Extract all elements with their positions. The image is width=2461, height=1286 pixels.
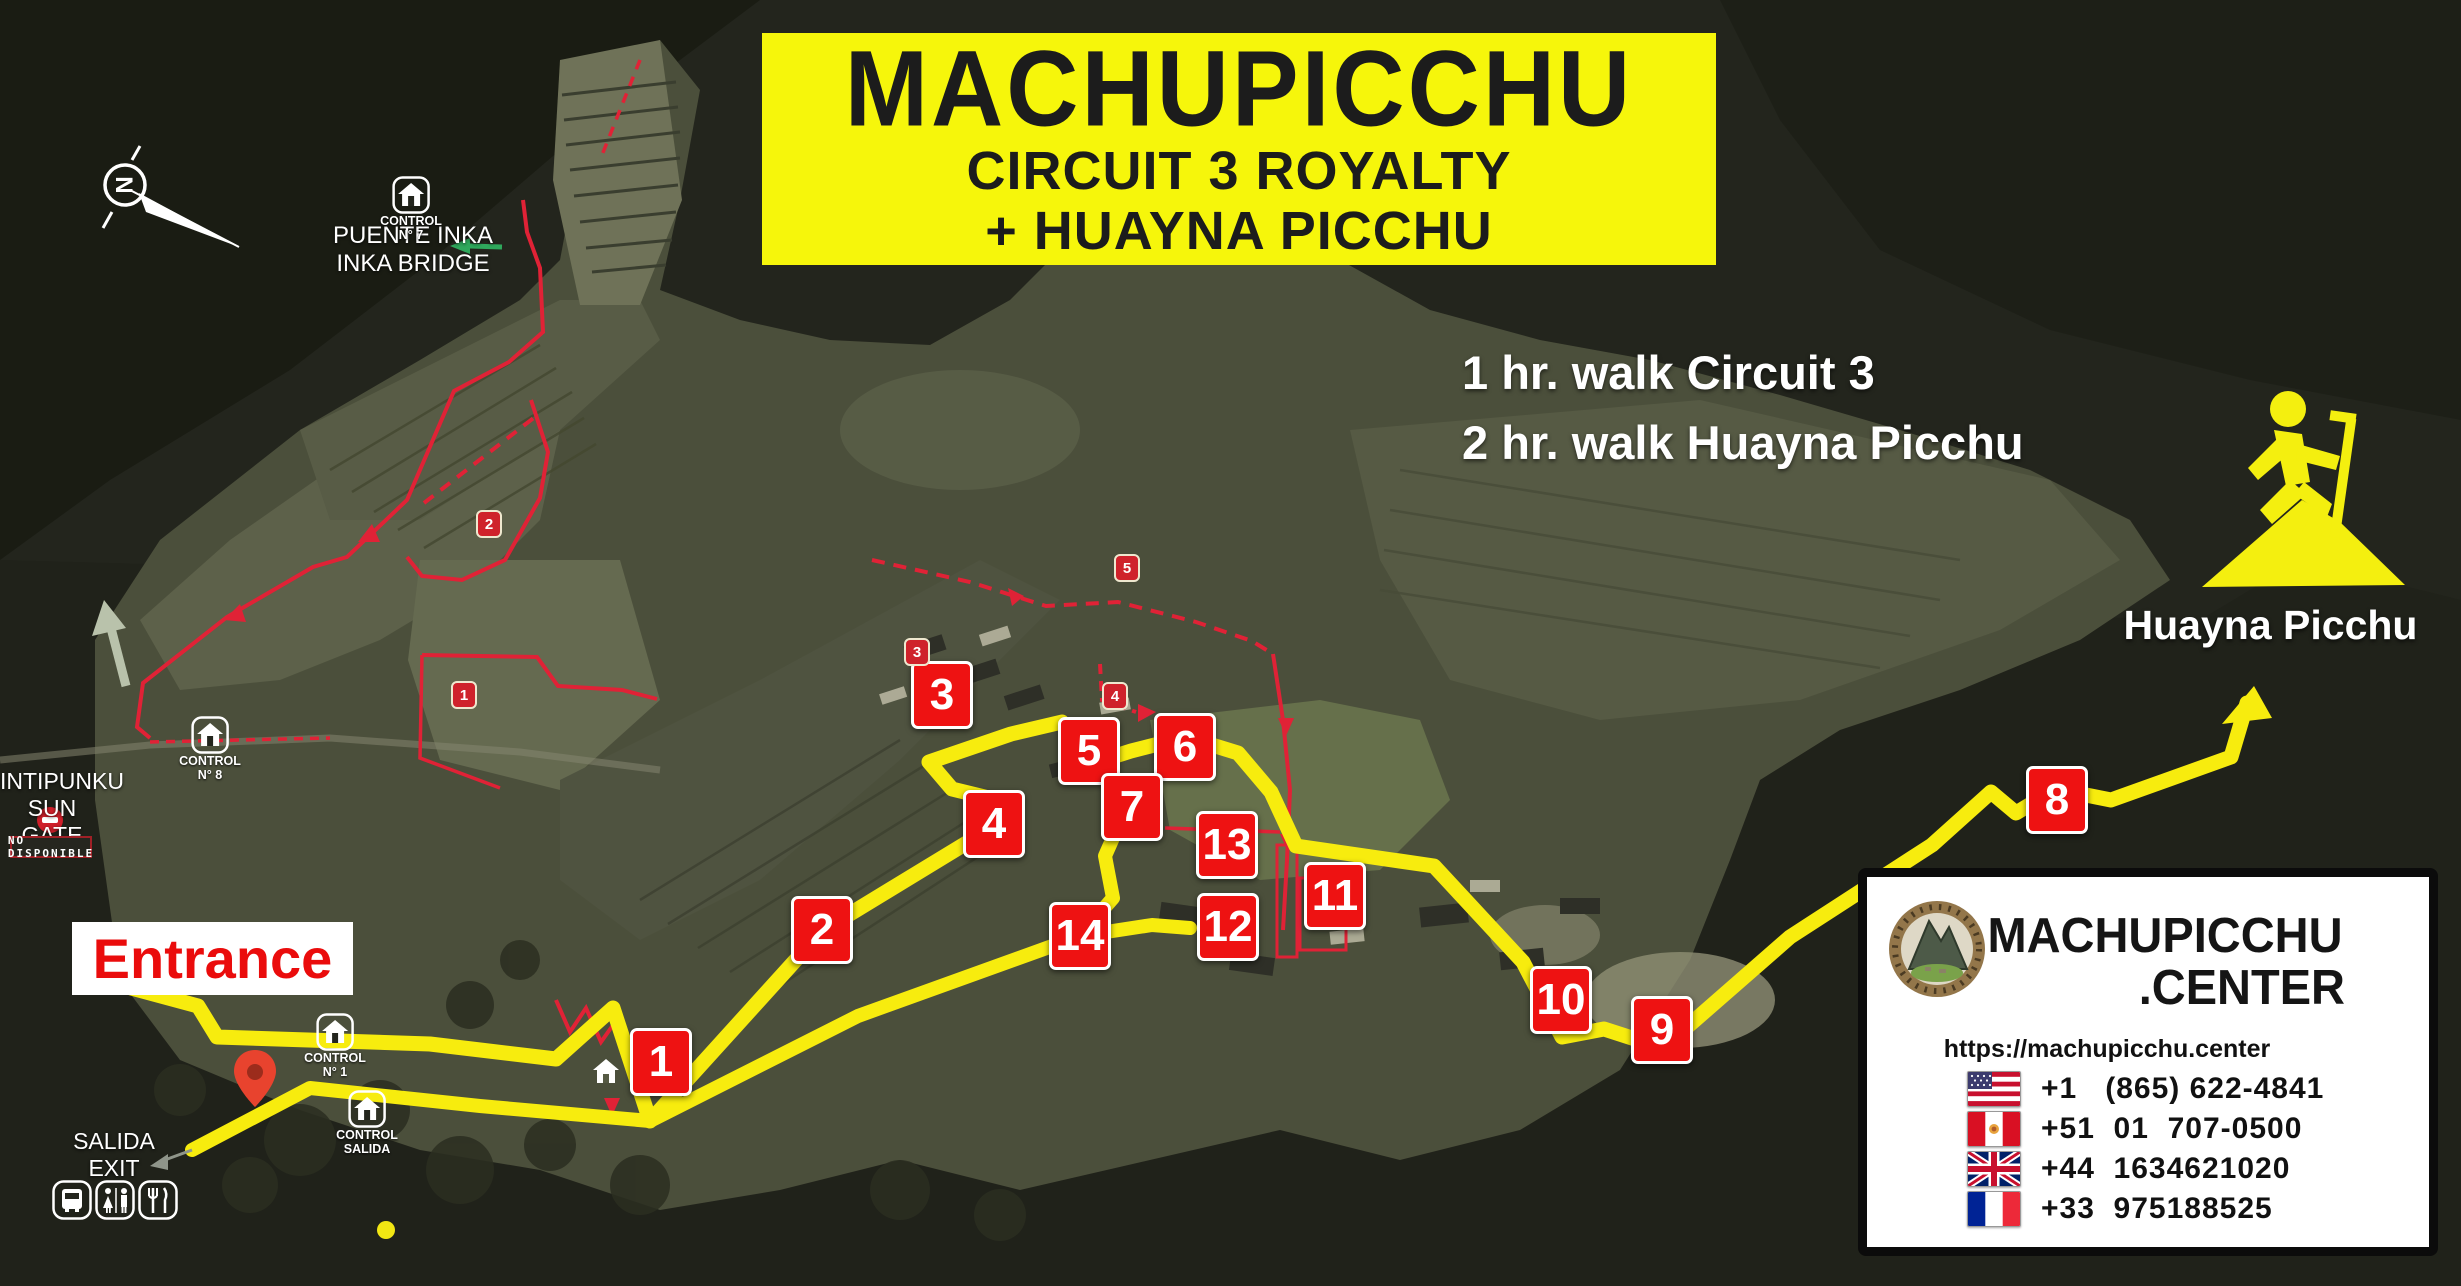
red-circuit-badge-3: 3: [904, 638, 930, 666]
phone-number-france: +33 975188525: [2041, 1192, 2273, 1226]
control-house-icon: [348, 1090, 386, 1128]
restaurant-icon: [138, 1180, 178, 1220]
peru-flag-icon: [1967, 1111, 2021, 1147]
waypoint-marker-14: 14: [1049, 902, 1111, 970]
sun-gate-line1: INTIPUNKU: [0, 768, 104, 795]
brand-name-top: MACHUPICCHU: [1985, 906, 2345, 964]
hiker-mountain-icon: [2190, 382, 2420, 592]
france-flag-icon: [1967, 1191, 2021, 1227]
huayna-picchu-label: Huayna Picchu: [2098, 602, 2443, 649]
phone-number-uk: +44 1634621020: [2041, 1152, 2290, 1186]
control-number: N° 8: [179, 768, 241, 782]
control-house-icon: [191, 716, 229, 754]
exit-line: EXIT: [62, 1155, 166, 1182]
waypoint-marker-9: 9: [1631, 996, 1693, 1064]
control-checkpoint-7: CONTROLN° 7: [380, 176, 442, 242]
walk-line-circuit3: 1 hr. walk Circuit 3: [1462, 338, 2024, 408]
not-available-badge: NO DISPONIBLE: [10, 836, 92, 858]
map-subtitle-huayna: + HUAYNA PICCHU: [985, 201, 1493, 261]
title-banner: MACHUPICCHU CIRCUIT 3 ROYALTY + HUAYNA P…: [762, 33, 1716, 265]
waypoint-marker-4: 4: [963, 790, 1025, 858]
waypoint-marker-1: 1: [630, 1028, 692, 1096]
machu-picchu-map: N MACHUPICCHU CIRCUIT 3 ROYALTY + HUAYNA…: [0, 0, 2461, 1286]
control-label: CONTROL: [336, 1128, 398, 1142]
brand-logo: [1887, 899, 1987, 999]
contact-card: MACHUPICCHU .CENTER https://machupicchu.…: [1858, 868, 2438, 1256]
control-checkpoint-8: CONTROLN° 8: [179, 716, 241, 782]
control-label: CONTROL: [380, 214, 442, 228]
control-checkpoint-1: CONTROLN° 1: [304, 1013, 366, 1079]
bus-icon: [52, 1180, 92, 1220]
control-number: N° 7: [380, 228, 442, 242]
control-number: N° 1: [304, 1065, 366, 1079]
control-number: SALIDA: [336, 1142, 398, 1156]
red-circuit-badge-5: 5: [1114, 554, 1140, 582]
walk-duration-info: 1 hr. walk Circuit 3 2 hr. walk Huayna P…: [1462, 338, 2024, 478]
brand-name-bottom: .CENTER: [1985, 958, 2345, 1016]
control-label: CONTROL: [179, 754, 241, 768]
waypoint-marker-11: 11: [1304, 862, 1366, 930]
waypoint-marker-10: 10: [1530, 966, 1592, 1034]
phone-list: +1 (865) 622-4841+51 01 707-0500+44 1634…: [1967, 1069, 2324, 1229]
map-title: MACHUPICCHU: [845, 33, 1634, 145]
phone-row-usa: +1 (865) 622-4841: [1967, 1069, 2324, 1109]
website-url: https://machupicchu.center: [1897, 1035, 2317, 1064]
phone-row-uk: +44 1634621020: [1967, 1149, 2324, 1189]
uk-flag-icon: [1967, 1151, 2021, 1187]
waypoint-marker-7: 7: [1101, 773, 1163, 841]
waypoint-marker-13: 13: [1196, 811, 1258, 879]
phone-row-france: +33 975188525: [1967, 1189, 2324, 1229]
red-circuit-badge-4: 4: [1102, 682, 1128, 710]
salida-exit-label: SALIDA EXIT: [62, 1128, 166, 1182]
svg-text:N: N: [112, 176, 139, 193]
usa-flag-icon: [1967, 1071, 2021, 1107]
map-subtitle-circuit: CIRCUIT 3 ROYALTY: [966, 141, 1511, 201]
yellow-dot: [377, 1221, 395, 1239]
phone-number-peru: +51 01 707-0500: [2041, 1112, 2302, 1146]
control-checkpoint-salida: CONTROLSALIDA: [336, 1090, 398, 1156]
red-circuit-badge-2: 2: [476, 510, 502, 538]
control-house-icon: [316, 1013, 354, 1051]
restroom-icon: [95, 1180, 135, 1220]
waypoint-marker-8: 8: [2026, 766, 2088, 834]
salida-line: SALIDA: [62, 1128, 166, 1155]
waypoint-marker-12: 12: [1197, 893, 1259, 961]
control-label: CONTROL: [304, 1051, 366, 1065]
red-circuit-badge-1: 1: [451, 681, 477, 709]
control-house-icon: [392, 176, 430, 214]
phone-number-usa: +1 (865) 622-4841: [2041, 1072, 2324, 1106]
phone-row-peru: +51 01 707-0500: [1967, 1109, 2324, 1149]
waypoint-marker-3: 3: [911, 661, 973, 729]
entrance-label: Entrance: [72, 922, 353, 995]
waypoint-marker-2: 2: [791, 896, 853, 964]
inka-bridge-line2: INKA BRIDGE: [318, 250, 508, 278]
walk-line-huayna: 2 hr. walk Huayna Picchu: [1462, 408, 2024, 478]
waypoint-marker-6: 6: [1154, 713, 1216, 781]
